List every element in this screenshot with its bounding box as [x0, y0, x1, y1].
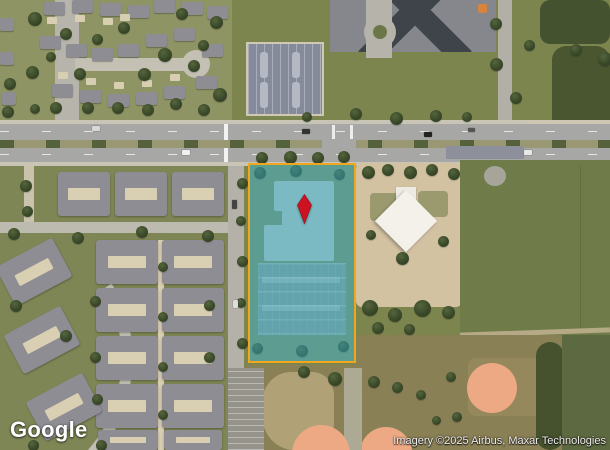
tree — [20, 180, 32, 192]
tree — [372, 322, 384, 334]
townhouse-block — [96, 336, 158, 380]
car — [468, 128, 475, 132]
tree — [404, 166, 417, 179]
house-roof — [100, 3, 121, 16]
townhouse-block — [58, 172, 110, 216]
tree — [158, 312, 168, 322]
townhouse-block — [96, 288, 158, 332]
tree — [204, 352, 215, 363]
tree — [213, 88, 227, 102]
house-roof — [128, 5, 149, 18]
driveway — [58, 72, 68, 79]
tree — [446, 372, 456, 382]
house-roof — [0, 18, 14, 31]
tree — [426, 164, 438, 176]
tree — [158, 362, 168, 372]
tree — [392, 382, 403, 393]
tree — [510, 92, 522, 104]
tree — [388, 308, 402, 322]
house-roof — [44, 2, 65, 15]
tree — [92, 34, 103, 45]
tree — [158, 410, 168, 420]
tree — [362, 166, 375, 179]
tree — [188, 60, 200, 72]
tree — [4, 78, 16, 90]
townhouse-block — [0, 238, 73, 307]
driveway — [114, 82, 124, 89]
townhouse-block — [96, 240, 158, 284]
driveway — [86, 78, 96, 85]
tree — [570, 44, 582, 56]
driveway — [120, 14, 130, 21]
tree — [204, 300, 215, 311]
tree — [8, 228, 20, 240]
tree — [237, 178, 248, 189]
townhouse-block — [115, 172, 167, 216]
tree — [60, 330, 72, 342]
tree — [60, 28, 72, 40]
house-roof — [80, 90, 101, 103]
tree — [46, 52, 56, 62]
tree — [490, 18, 502, 30]
tree — [350, 108, 362, 120]
tree — [10, 300, 22, 312]
tree — [26, 66, 39, 79]
tree — [90, 296, 101, 307]
tree — [362, 300, 378, 316]
tree — [202, 230, 214, 242]
tree — [82, 102, 94, 114]
car — [182, 150, 190, 155]
tree — [396, 252, 409, 265]
driveway — [170, 74, 180, 81]
imagery-attribution: Imagery ©2025 Airbus, Maxar Technologies — [393, 435, 606, 447]
tree — [452, 412, 462, 422]
driveway — [75, 15, 85, 22]
tree — [328, 372, 342, 386]
tree — [30, 104, 40, 114]
house-roof — [118, 44, 139, 57]
house-roof — [2, 92, 16, 105]
tree — [416, 390, 426, 400]
tree — [112, 102, 124, 114]
tree — [118, 22, 130, 34]
tree — [237, 338, 248, 349]
tree — [404, 324, 415, 335]
driveway — [103, 18, 113, 25]
tree — [438, 236, 449, 247]
car — [232, 200, 237, 209]
townhouse-block — [96, 384, 158, 428]
satellite-map[interactable]: Google Imagery ©2025 Airbus, Maxar Techn… — [0, 0, 610, 450]
tree — [90, 352, 101, 363]
tree — [490, 58, 503, 71]
tree — [198, 40, 209, 51]
car — [424, 132, 432, 137]
townhouse-block — [162, 288, 224, 332]
tree — [158, 262, 168, 272]
tree — [176, 8, 188, 20]
tree — [96, 440, 107, 450]
house-roof — [40, 36, 61, 49]
car — [92, 126, 100, 131]
townhouse-block — [172, 172, 224, 216]
tree — [74, 68, 86, 80]
tree — [28, 12, 42, 26]
house-roof — [66, 44, 87, 57]
tree — [430, 110, 442, 122]
townhouse-block — [164, 430, 222, 450]
house-roof — [0, 52, 14, 65]
tree — [237, 256, 248, 267]
parcel-pin-marker[interactable] — [297, 194, 312, 224]
tree — [198, 104, 210, 116]
townhouse-block — [162, 384, 224, 428]
map-viewport: Google Imagery ©2025 Airbus, Maxar Techn… — [0, 0, 610, 450]
pin-icon — [297, 194, 312, 224]
house-roof — [196, 76, 217, 89]
highlighted-parcel[interactable] — [248, 163, 356, 363]
tree — [2, 106, 14, 118]
tree — [72, 232, 84, 244]
house-roof — [52, 84, 73, 97]
tree — [302, 112, 312, 122]
tree — [382, 164, 394, 176]
tree — [210, 16, 223, 29]
google-logo[interactable]: Google — [10, 417, 88, 443]
tree — [366, 230, 376, 240]
tree — [142, 104, 154, 116]
house-roof — [72, 0, 93, 13]
house-roof — [154, 0, 175, 13]
tree — [432, 416, 441, 425]
tree — [462, 112, 472, 122]
house-roof — [174, 28, 195, 41]
tree — [138, 68, 151, 81]
tree — [598, 52, 610, 66]
townhouse-block — [98, 430, 158, 450]
tree — [50, 102, 62, 114]
tree — [442, 306, 455, 319]
driveway — [47, 17, 57, 24]
tree — [92, 394, 103, 405]
tree — [368, 376, 380, 388]
house-roof — [146, 34, 167, 47]
tree — [524, 40, 535, 51]
car — [233, 300, 238, 308]
tree — [236, 216, 246, 226]
tree — [298, 366, 310, 378]
tree — [170, 98, 182, 110]
tree — [338, 151, 350, 163]
tree — [390, 112, 403, 125]
house-roof — [92, 48, 113, 61]
car — [524, 150, 532, 155]
car — [302, 129, 310, 134]
tree — [22, 206, 33, 217]
townhouse-block — [162, 240, 224, 284]
tree — [158, 48, 172, 62]
driveway — [142, 80, 152, 87]
tree — [448, 168, 460, 180]
tree — [414, 300, 431, 317]
tree — [136, 226, 148, 238]
